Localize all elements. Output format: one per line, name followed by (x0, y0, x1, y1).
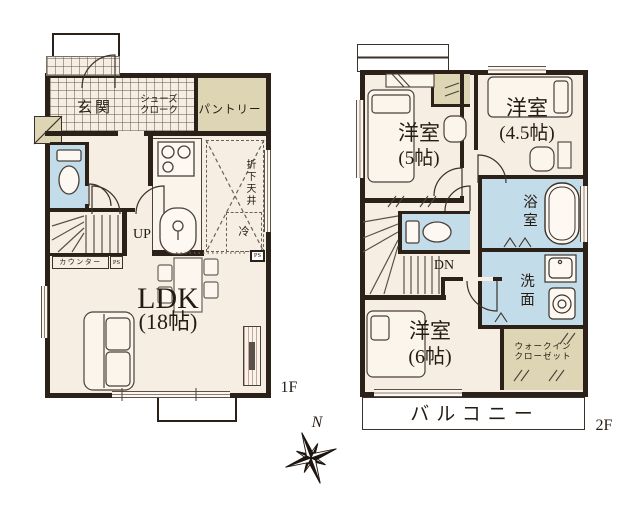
stairs-up-label: UP (127, 227, 157, 243)
window (356, 100, 364, 178)
window (488, 66, 546, 74)
wall (482, 248, 583, 252)
kitchen-counter (152, 138, 202, 254)
entrance-label: 玄関 (60, 100, 130, 117)
wall (398, 250, 470, 254)
pantry-label: パントリー (196, 104, 264, 117)
pipe-space-label-1: PS (110, 259, 123, 266)
bedroom6-name-label: 洋室 (386, 320, 474, 344)
understairs-storage (34, 116, 62, 144)
wall (152, 250, 204, 256)
room-toilet-2f (402, 214, 470, 250)
porch-tiles (46, 56, 120, 76)
bedroom5-size-label: (5帖) (375, 148, 463, 169)
wall (441, 277, 445, 300)
walk-in-closet-label: ウォークイン クローゼット (504, 342, 582, 361)
closet-bedroom5 (431, 74, 470, 107)
dropped-ceiling-label: 折下天井 (239, 146, 255, 220)
wall (88, 208, 135, 212)
balcony-label: バルコニー (380, 404, 570, 425)
window (112, 391, 230, 398)
wall (45, 131, 271, 136)
window (374, 389, 462, 397)
bathroom-label: 浴室 (519, 183, 537, 241)
tv-board-inner (249, 342, 255, 370)
counter-label: カウンター (52, 259, 109, 267)
wall (85, 142, 89, 186)
floor2-label: 2F (589, 417, 619, 435)
bedroom5-name-label: 洋室 (375, 122, 463, 146)
bedroom45-name-label: 洋室 (482, 97, 572, 121)
wall (50, 142, 89, 145)
floor1-label: 1F (274, 379, 304, 397)
window (41, 286, 48, 338)
wall (478, 175, 482, 329)
shoe-closet-label: シューズ クローク (128, 95, 190, 116)
bedroom6-size-label: (6帖) (386, 346, 474, 368)
wall (360, 198, 464, 203)
window (580, 186, 588, 242)
compass-north-label: N (304, 414, 330, 432)
compass-icon (276, 423, 345, 492)
wall (398, 211, 470, 214)
wall (398, 211, 402, 254)
ldk-size-label: (18帖) (106, 310, 230, 335)
window (264, 150, 271, 232)
wall (148, 136, 153, 186)
doorway-gap (474, 150, 478, 175)
floorplan-canvas: 冷 (0, 0, 639, 508)
doorway-gap (118, 131, 144, 136)
bedroom45-size-label: (4.5帖) (482, 123, 572, 144)
wall (478, 325, 583, 329)
refrigerator-label: 冷 (239, 226, 250, 238)
room-toilet-1f (50, 145, 88, 211)
wall (360, 295, 446, 300)
doorway-gap (460, 168, 464, 196)
wall (478, 175, 583, 179)
pipe-space-label-2: PS (250, 252, 265, 259)
doorway-gap (463, 277, 493, 281)
roof-ledge (357, 44, 449, 72)
wall (50, 208, 89, 212)
washroom-label: 洗面 (516, 261, 534, 321)
stairs-down-label: DN (427, 258, 461, 274)
bay-window (157, 396, 237, 422)
